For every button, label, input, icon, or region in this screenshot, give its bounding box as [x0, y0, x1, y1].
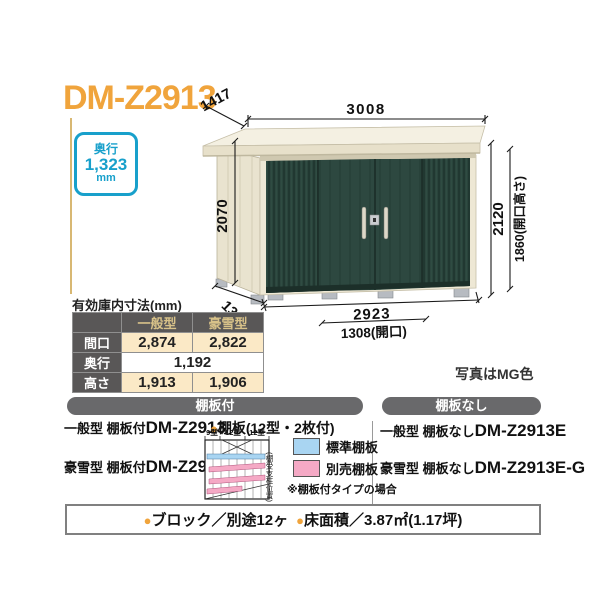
table-row: 間口 2,874 2,822 [73, 333, 264, 353]
spec-takasa-general: 1,913 [122, 373, 193, 393]
footer-block-text: ブロック／別途12ヶ [151, 512, 288, 529]
dim-opening-height: 1860(開口高さ) [512, 176, 527, 262]
dim-width-top: 3008 [346, 101, 385, 118]
table-row: 奥行 1,192 [73, 353, 264, 373]
legend-label: 別売棚板 [326, 459, 378, 478]
spec-maguchi-general: 2,874 [122, 333, 193, 353]
shelf-diagram-side-note: (棚受支柱位置) [264, 452, 275, 502]
model-prefix: 一般型 棚板付 [64, 421, 146, 436]
shelf-size-label-2: 12型 [225, 427, 241, 437]
spec-table: 一般型 豪雪型 間口 2,874 2,822 奥行 1,192 高さ 1,913… [72, 312, 264, 393]
spec-col-general: 一般型 [122, 313, 193, 333]
footer-floor-area-item: ●床面積／3.87㎡(1.17坪) [296, 509, 462, 530]
depth-badge: 奥行 1,323 mm [74, 132, 138, 196]
spec-row-maguchi-label: 間口 [73, 333, 122, 353]
model-prefix: 豪雪型 棚板付 [64, 460, 146, 475]
spec-row-takasa-label: 高さ [73, 373, 122, 393]
dim-height-left: 2070 [214, 199, 231, 232]
spec-col-gosetsu: 豪雪型 [193, 313, 264, 333]
shelf-layout-diagram: 9型 12型 12型 [202, 427, 272, 505]
footer-floor-area-text: 床面積／3.87㎡(1.17坪) [304, 512, 462, 529]
model-row-general-no-shelf: 一般型 棚板なしDM-Z2913E [380, 421, 566, 441]
left-rule [70, 118, 72, 294]
model-row-gosetsu-no-shelf: 豪雪型 棚板なしDM-Z2913E-G [380, 458, 585, 478]
shelf-size-label-3: 12型 [249, 427, 265, 437]
bullet-icon: ● [296, 513, 304, 528]
shed-roof-top [203, 126, 485, 146]
spec-col-corner [73, 313, 122, 333]
depth-badge-label: 奥行 [94, 143, 118, 156]
model-prefix: 豪雪型 棚板なし [380, 461, 475, 476]
dim-height-right: 2120 [490, 202, 507, 235]
shed-door-right [375, 159, 422, 290]
spec-maguchi-gosetsu: 2,822 [193, 333, 264, 353]
legend-standard-shelf: 標準棚板 [293, 437, 378, 456]
door-handle-right [384, 207, 388, 239]
legend-optional-shelf: 別売棚板 [293, 459, 378, 478]
model-number: DM-Z2913E-G [475, 458, 586, 477]
standard-shelf-band [207, 454, 265, 459]
dim-opening-width: 1308(開口) [341, 324, 408, 341]
spec-okuyuki-both: 1,192 [122, 353, 264, 373]
shed-door-left [318, 159, 375, 291]
depth-badge-value: 1,323 [85, 156, 128, 174]
model-prefix: 一般型 棚板なし [380, 424, 475, 439]
photo-color-note: 写真はMG色 [455, 364, 534, 384]
shelf-type-note: ※棚板付タイプの場合 [287, 481, 397, 497]
table-row: 高さ 1,913 1,906 [73, 373, 264, 393]
section-header-with-shelf: 棚板付 [67, 397, 363, 415]
spec-row-okuyuki-label: 奥行 [73, 353, 122, 373]
shelf-size-label-1: 9型 [206, 427, 218, 437]
legend-label: 標準棚板 [326, 437, 378, 456]
spec-takasa-gosetsu: 1,906 [193, 373, 264, 393]
standard-shelf-swatch [293, 438, 320, 455]
footer-info-bar: ●ブロック／別途12ヶ ●床面積／3.87㎡(1.17坪) [65, 504, 541, 535]
depth-badge-unit: mm [96, 173, 116, 185]
footer-block-item: ●ブロック／別途12ヶ [144, 509, 289, 530]
dim-width-bottom: 2923 [353, 305, 391, 323]
model-number: DM-Z2913E [475, 421, 567, 440]
door-handle-left [362, 207, 366, 239]
optional-shelf-swatch [293, 460, 320, 477]
section-header-no-shelf: 棚板なし [382, 397, 541, 415]
